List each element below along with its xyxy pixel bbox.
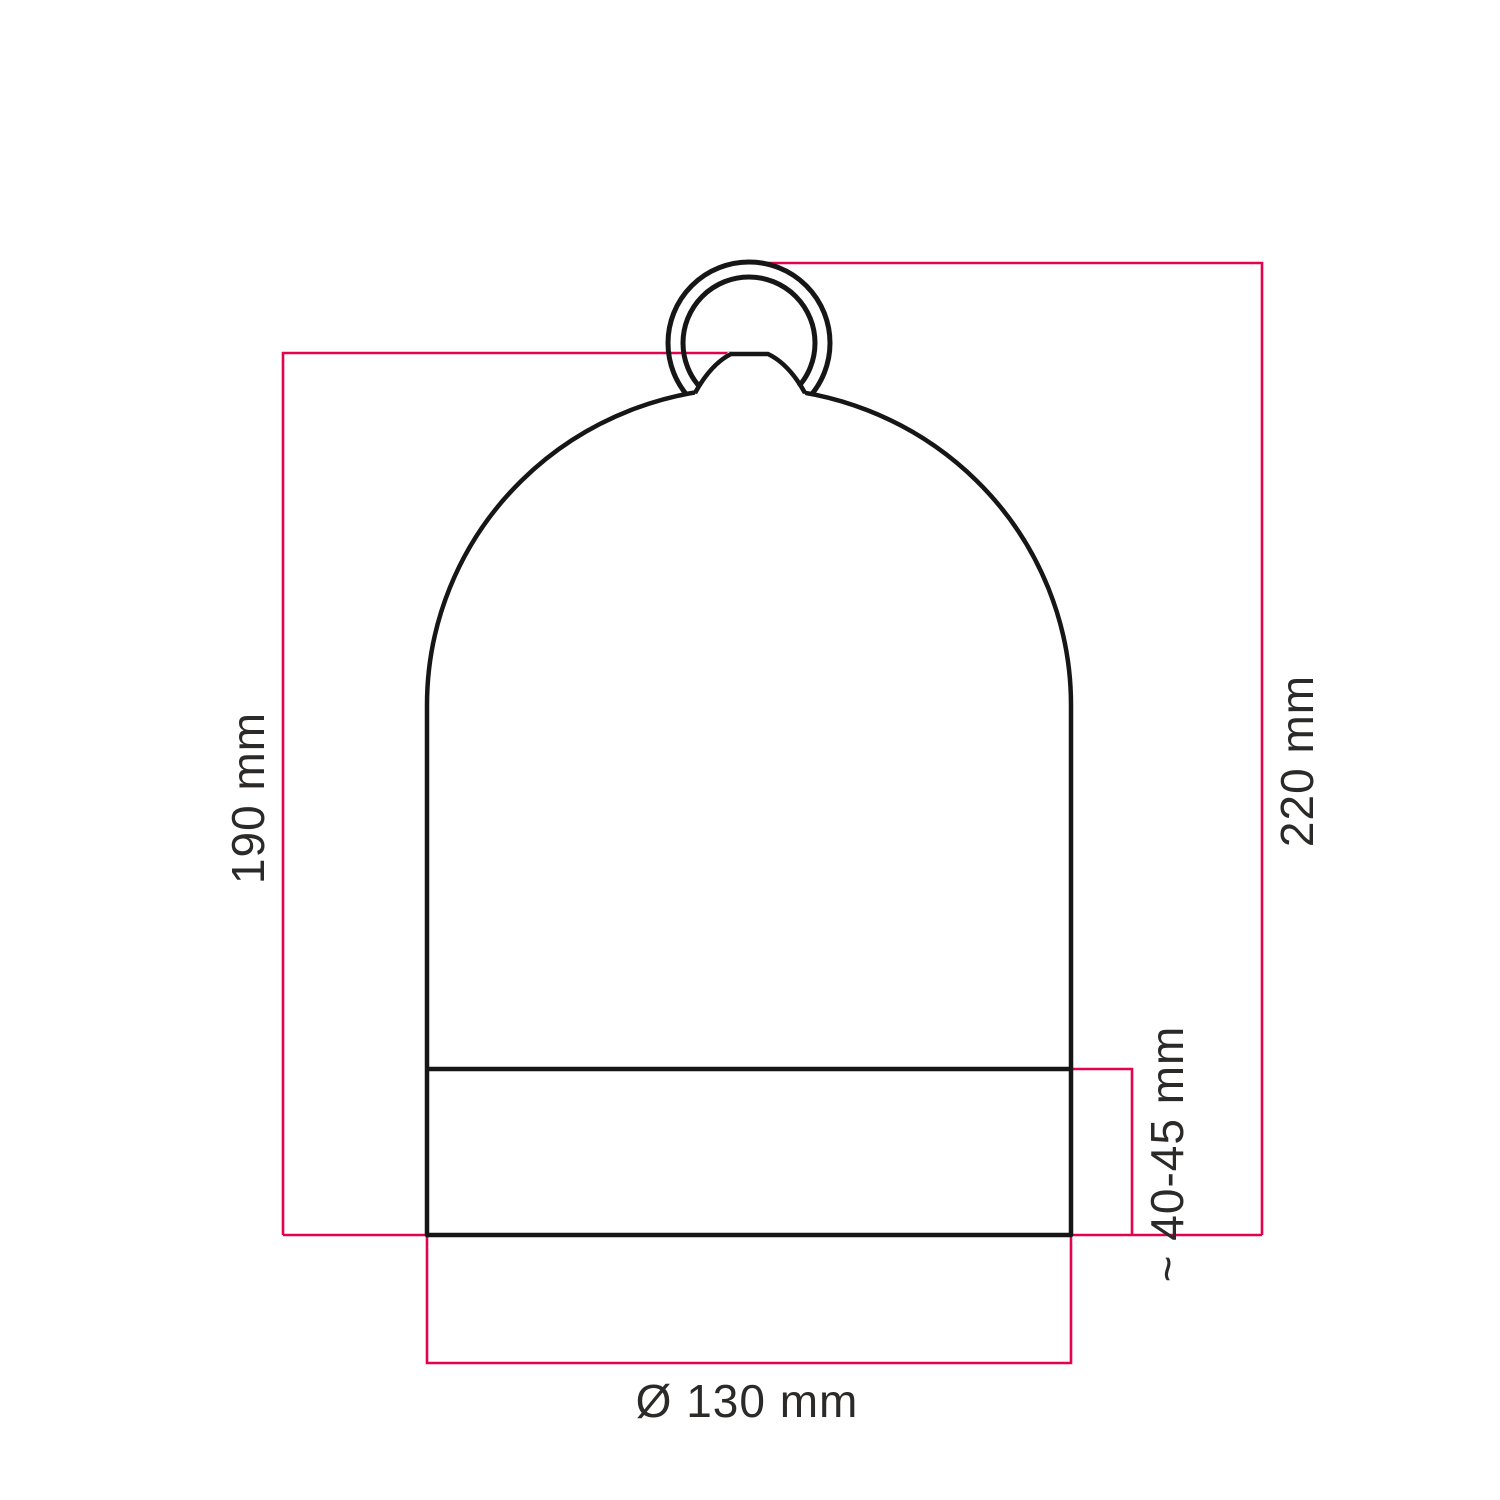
total-height-label: 220 mm bbox=[1274, 675, 1320, 847]
bell-dome-outline bbox=[427, 388, 1071, 1235]
lampshade-dimension-diagram: 190 mm 220 mm ~ 40-45 mm Ø 130 mm bbox=[0, 0, 1500, 1500]
dimension-box-diameter bbox=[427, 1235, 1071, 1363]
diameter-label: Ø 130 mm bbox=[636, 1378, 859, 1424]
base-height-label: ~ 40-45 mm bbox=[1144, 1026, 1190, 1283]
body-height-label: 190 mm bbox=[225, 712, 271, 884]
